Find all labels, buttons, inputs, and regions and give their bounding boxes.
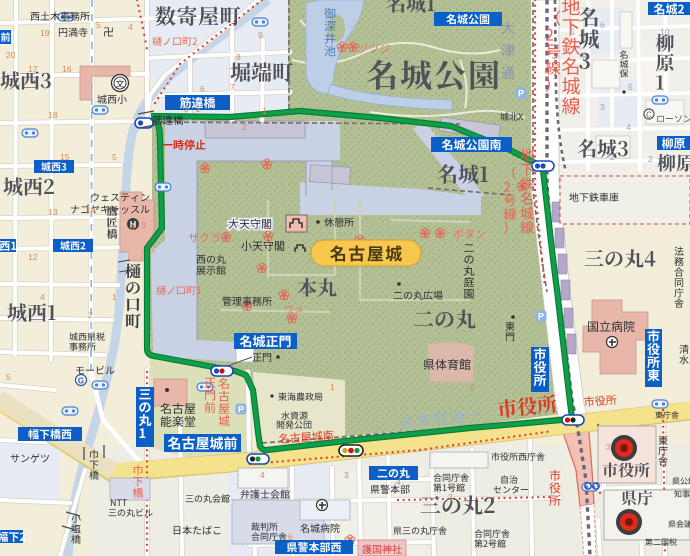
svg-text:18: 18	[48, 110, 58, 120]
svg-text:7: 7	[230, 82, 235, 92]
svg-text:14: 14	[86, 205, 96, 215]
svg-text:6: 6	[600, 20, 605, 30]
svg-text:2: 2	[196, 104, 201, 114]
svg-text:17: 17	[28, 64, 38, 74]
svg-text:4: 4	[30, 432, 35, 442]
svg-text:6: 6	[200, 84, 205, 94]
svg-text:P: P	[238, 405, 244, 415]
svg-text:4: 4	[626, 122, 631, 132]
svg-text:3: 3	[141, 220, 146, 230]
svg-text:2: 2	[610, 152, 615, 162]
svg-text:3: 3	[184, 104, 189, 114]
svg-text:3: 3	[620, 52, 625, 62]
svg-text:15: 15	[60, 152, 70, 162]
svg-text:5: 5	[6, 372, 11, 382]
svg-text:8: 8	[582, 52, 587, 62]
svg-text:2: 2	[470, 382, 475, 392]
svg-text:1: 1	[112, 292, 117, 302]
svg-text:3: 3	[600, 102, 605, 112]
svg-text:4: 4	[128, 22, 133, 32]
svg-text:10: 10	[660, 27, 670, 37]
svg-text:5: 5	[96, 20, 101, 30]
svg-text:C: C	[646, 111, 652, 120]
svg-text:G: G	[78, 377, 84, 386]
svg-text:3: 3	[344, 470, 349, 480]
svg-text:5: 5	[628, 82, 633, 92]
svg-text:8: 8	[236, 52, 241, 62]
svg-text:9: 9	[258, 30, 263, 40]
svg-text:1: 1	[262, 106, 267, 116]
svg-text:P: P	[518, 89, 524, 99]
svg-text:6: 6	[288, 532, 293, 542]
svg-text:2: 2	[242, 122, 247, 132]
svg-text:4: 4	[40, 292, 45, 302]
svg-text:3: 3	[606, 442, 611, 452]
svg-text:13: 13	[48, 207, 58, 217]
svg-text:4: 4	[260, 470, 265, 480]
svg-text:5: 5	[112, 152, 117, 162]
svg-text:P: P	[538, 312, 544, 322]
svg-text:2: 2	[88, 310, 93, 320]
svg-text:2: 2	[648, 154, 653, 164]
svg-text:20: 20	[6, 50, 16, 60]
svg-text:2: 2	[448, 492, 453, 502]
svg-text:6: 6	[586, 10, 591, 20]
svg-text:3: 3	[130, 222, 135, 232]
svg-text:4: 4	[396, 477, 401, 487]
svg-text:12: 12	[28, 252, 38, 262]
svg-text:16: 16	[62, 64, 72, 74]
svg-text:5: 5	[570, 27, 575, 37]
svg-text:19: 19	[40, 28, 50, 38]
svg-text:1: 1	[330, 382, 335, 392]
